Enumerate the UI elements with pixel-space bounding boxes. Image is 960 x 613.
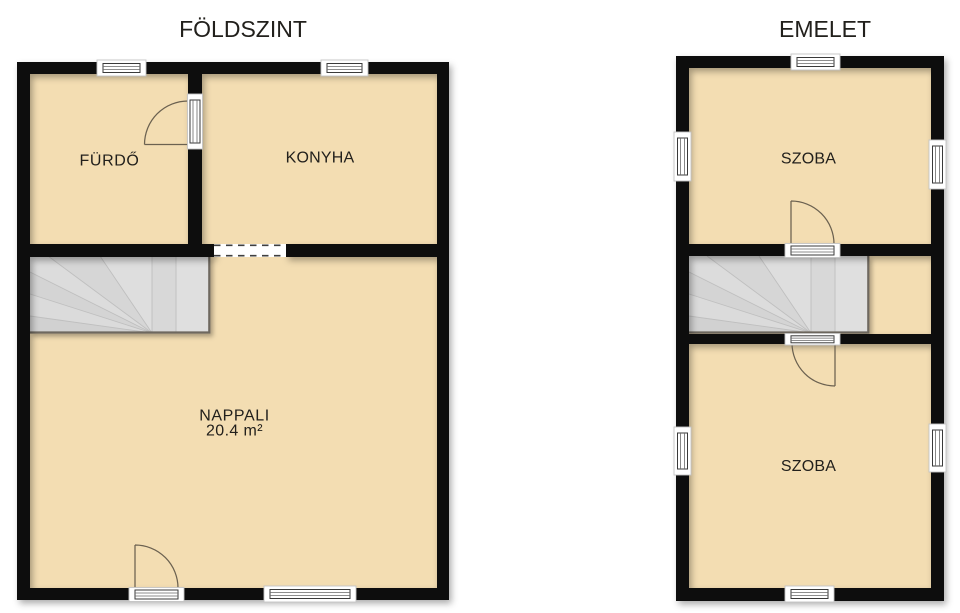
svg-text:KONYHA: KONYHA: [286, 150, 355, 167]
svg-text:FÜRDŐ: FÜRDŐ: [80, 151, 140, 170]
svg-text:EMELET: EMELET: [779, 16, 871, 42]
svg-text:FÖLDSZINT: FÖLDSZINT: [179, 16, 307, 42]
svg-text:20.4 m²: 20.4 m²: [206, 422, 263, 439]
svg-text:SZOBA: SZOBA: [781, 151, 836, 168]
svg-text:SZOBA: SZOBA: [781, 458, 836, 475]
